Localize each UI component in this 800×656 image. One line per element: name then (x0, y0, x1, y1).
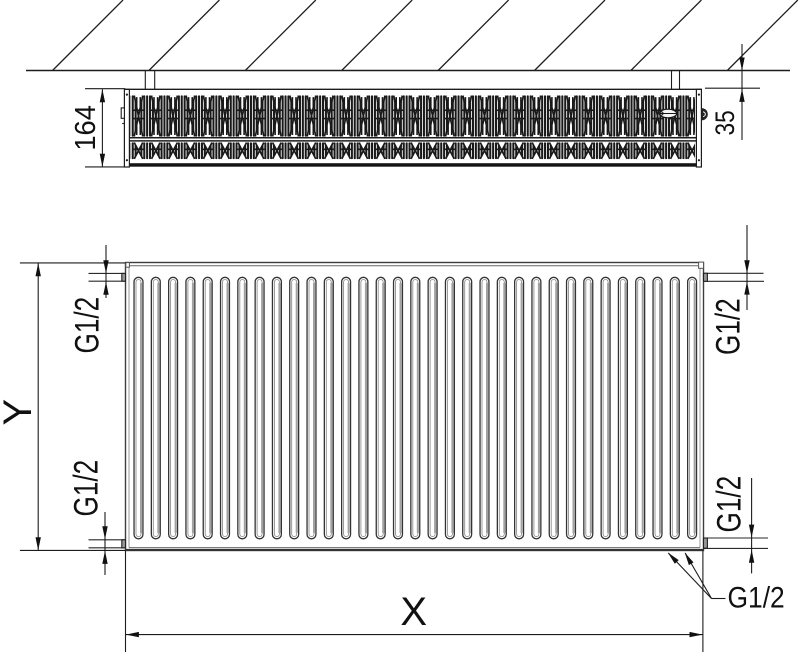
svg-text:G1/2: G1/2 (68, 460, 105, 517)
svg-text:X: X (400, 590, 427, 634)
svg-text:G1/2: G1/2 (728, 580, 785, 614)
svg-text:35: 35 (710, 110, 740, 135)
svg-text:164: 164 (69, 105, 101, 150)
svg-text:G1/2: G1/2 (711, 476, 748, 533)
svg-text:G1/2: G1/2 (69, 297, 106, 354)
svg-text:Y: Y (0, 399, 40, 426)
svg-text:G1/2: G1/2 (710, 298, 747, 355)
